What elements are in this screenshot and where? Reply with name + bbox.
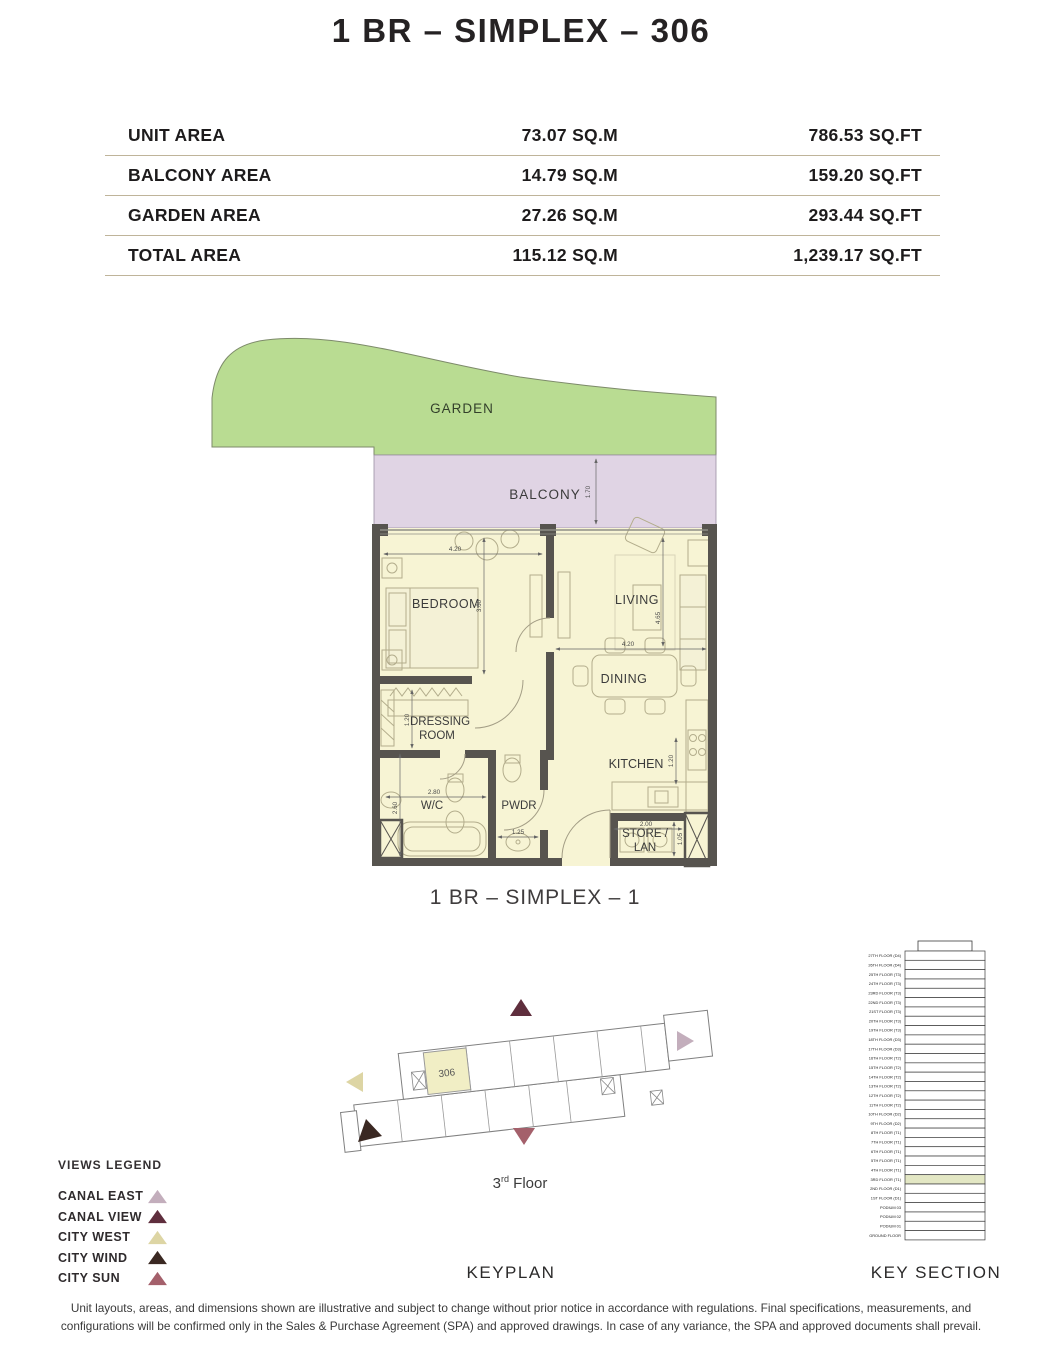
key-section-floor-label: 1ST FLOOR (D1) <box>871 1195 902 1200</box>
legend-item-label: CITY SUN <box>58 1271 146 1285</box>
kitchen-label: KITCHEN <box>609 757 664 771</box>
views-legend: VIEWS LEGEND CANAL EAST CANAL VIEW CITY … <box>58 1158 169 1289</box>
key-section-floors: 27TH FLOOR (D4)26TH FLOOR (D4)25TH FLOOR… <box>868 951 985 1240</box>
floor-plan-svg: GARDEN BALCONY BEDROOM LIVING DINING DRE… <box>0 0 1042 1348</box>
legend-item-label: CANAL VIEW <box>58 1210 146 1224</box>
triangle-icon <box>146 1249 169 1266</box>
keyplan-section-label: KEYPLAN <box>401 1263 621 1283</box>
keyplan-unit-number: 306 <box>438 1067 456 1080</box>
key-section-floor-row <box>905 1044 985 1053</box>
key-section-floor-row <box>905 1091 985 1100</box>
key-section-floor-row <box>905 1109 985 1118</box>
key-section-floor-row <box>905 1119 985 1128</box>
key-section-floor-row <box>905 1016 985 1025</box>
key-section-floor-row <box>905 1007 985 1016</box>
dining-label: DINING <box>601 672 648 686</box>
store-label-line2: LAN <box>634 842 656 854</box>
key-section-floor-label: 23RD FLOOR (T3) <box>868 990 901 995</box>
key-section-floor-row <box>905 979 985 988</box>
garden-area <box>212 338 716 455</box>
key-section-floor-row <box>905 1165 985 1174</box>
dim-wc-width: 2.80 <box>428 789 441 796</box>
key-section-floor-row <box>905 1081 985 1090</box>
view-arrow-bottom <box>513 1128 535 1145</box>
key-section-floor-row <box>905 998 985 1007</box>
floor-word: Floor <box>509 1175 547 1192</box>
key-section-floor-label: 12TH FLOOR (T2) <box>869 1093 902 1098</box>
key-section-floor-row <box>905 1128 985 1137</box>
legend-item-label: CITY WIND <box>58 1251 146 1265</box>
key-section-floor-label: 17TH FLOOR (D3) <box>868 1046 901 1051</box>
balcony-label: BALCONY <box>509 487 581 502</box>
key-section-floor-label: 4TH FLOOR (T1) <box>871 1168 902 1173</box>
key-section-floor-row <box>905 1212 985 1221</box>
key-section-section-label: KEY SECTION <box>826 1263 1042 1283</box>
key-section-floor-label: 13TH FLOOR (T2) <box>869 1084 902 1089</box>
key-section-floor-row <box>905 988 985 997</box>
key-section-floor-label: 27TH FLOOR (D4) <box>868 953 901 958</box>
dim-dressing-width: 1.20 <box>404 713 411 726</box>
key-section-floor-row <box>905 1203 985 1212</box>
dim-bedroom-height: 3.60 <box>476 599 483 612</box>
key-section-floor-row <box>905 960 985 969</box>
unit-caption: 1 BR – SIMPLEX – 1 <box>330 886 740 910</box>
triangle-icon <box>146 1270 169 1287</box>
key-section-floor-row <box>905 951 985 960</box>
key-section-floor-row <box>905 1231 985 1240</box>
key-section-floor-row <box>905 1175 985 1184</box>
dim-balcony-depth: 1.70 <box>585 485 592 498</box>
view-arrow-left <box>346 1072 363 1092</box>
wc-label: W/C <box>421 800 443 812</box>
legend-item: CITY WIND <box>58 1248 169 1269</box>
store-label-line1: STORE / <box>622 828 669 840</box>
key-section-floor-label: PODIUM 02 <box>880 1214 901 1219</box>
view-arrow-top <box>510 999 532 1016</box>
key-section-floor-label: PODIUM 03 <box>880 1205 901 1210</box>
dim-pwdr-width: 1.25 <box>512 829 525 836</box>
key-section-floor-label: 18TH FLOOR (D3) <box>868 1037 901 1042</box>
keyplan: 306 <box>334 999 719 1152</box>
legend-item: CITY SUN <box>58 1268 169 1289</box>
key-section-floor-label: 16TH FLOOR (T2) <box>869 1056 902 1061</box>
dim-wc-height: 2.60 <box>392 801 399 814</box>
key-section-floor-label: 5TH FLOOR (T1) <box>871 1158 902 1163</box>
keyplan-right-end <box>664 1010 713 1061</box>
key-section-floor-row <box>905 1035 985 1044</box>
floor-indicator: 3rd Floor <box>420 1174 620 1192</box>
triangle-icon <box>146 1188 169 1205</box>
key-section-roof <box>918 941 972 951</box>
dim-kitchen-depth: 1.20 <box>668 754 675 767</box>
key-section-floor-label: 26TH FLOOR (D4) <box>868 962 901 967</box>
key-section-floor-row <box>905 1147 985 1156</box>
legend-item: CANAL VIEW <box>58 1207 169 1228</box>
key-section-floor-row <box>905 1063 985 1072</box>
key-section-floor-row <box>905 1137 985 1146</box>
key-section-floor-label: 14TH FLOOR (T2) <box>869 1074 902 1079</box>
key-section-floor-label: 10TH FLOOR (D2) <box>868 1112 901 1117</box>
key-section-floor-label: 3RD FLOOR (T1) <box>871 1177 902 1182</box>
key-section-floor-label: 9TH FLOOR (D2) <box>871 1121 902 1126</box>
dim-living-width: 4.20 <box>622 641 635 648</box>
views-legend-title: VIEWS LEGEND <box>58 1158 169 1172</box>
key-section-floor-label: 11TH FLOOR (T2) <box>869 1102 902 1107</box>
floor-plan-page: 1 BR – SIMPLEX – 306 UNIT AREA 73.07 SQ.… <box>0 0 1042 1348</box>
key-section-floor-label: 22ND FLOOR (T3) <box>868 1000 901 1005</box>
triangle-icon <box>146 1208 169 1225</box>
dim-store-width: 2.00 <box>640 821 653 828</box>
dressing-label-line1: DRESSING <box>410 716 470 728</box>
dim-store-height: 1.05 <box>677 832 684 845</box>
living-label: LIVING <box>615 593 659 607</box>
dim-living-height: 4.65 <box>655 611 662 624</box>
key-section-floor-label: PODIUM 01 <box>880 1223 901 1228</box>
legend-item: CITY WEST <box>58 1227 169 1248</box>
key-section-floor-label: 24TH FLOOR (T3) <box>869 981 902 986</box>
key-section-floor-label: 8TH FLOOR (T1) <box>871 1130 902 1135</box>
key-section-floor-row <box>905 1184 985 1193</box>
key-section-floor-row <box>905 1054 985 1063</box>
key-section-floor-row <box>905 1100 985 1109</box>
key-section: 27TH FLOOR (D4)26TH FLOOR (D4)25TH FLOOR… <box>868 941 985 1240</box>
key-section-floor-row <box>905 970 985 979</box>
key-section-floor-label: 20TH FLOOR (T3) <box>869 1018 902 1023</box>
key-section-floor-row <box>905 1156 985 1165</box>
disclaimer-text: Unit layouts, areas, and dimensions show… <box>60 1300 982 1335</box>
key-section-floor-label: 25TH FLOOR (T3) <box>869 972 902 977</box>
key-section-floor-label: 6TH FLOOR (T1) <box>871 1149 902 1154</box>
key-section-floor-row <box>905 1221 985 1230</box>
dressing-label-line2: ROOM <box>419 730 455 742</box>
key-section-floor-label: GROUND FLOOR <box>869 1233 901 1238</box>
legend-item-label: CANAL EAST <box>58 1189 146 1203</box>
key-section-floor-label: 7TH FLOOR (T1) <box>871 1140 902 1145</box>
floor-ordinal: rd <box>501 1174 509 1184</box>
key-section-floor-label: 21ST FLOOR (T3) <box>869 1009 902 1014</box>
triangle-icon <box>146 1229 169 1246</box>
dim-bedroom-width: 4.20 <box>449 546 462 553</box>
legend-item-label: CITY WEST <box>58 1230 146 1244</box>
bedroom-label: BEDROOM <box>412 597 480 611</box>
key-section-floor-label: 2ND FLOOR (D1) <box>870 1186 902 1191</box>
key-section-floor-row <box>905 1193 985 1202</box>
garden-label: GARDEN <box>430 401 494 416</box>
floor-number: 3 <box>493 1175 501 1192</box>
key-section-floor-label: 19TH FLOOR (T3) <box>869 1028 902 1033</box>
key-section-floor-label: 15TH FLOOR (T2) <box>869 1065 902 1070</box>
key-section-floor-row <box>905 1026 985 1035</box>
legend-item: CANAL EAST <box>58 1186 169 1207</box>
pwdr-label: PWDR <box>501 800 536 812</box>
floor-plan: GARDEN BALCONY BEDROOM LIVING DINING DRE… <box>212 338 717 866</box>
key-section-floor-row <box>905 1072 985 1081</box>
